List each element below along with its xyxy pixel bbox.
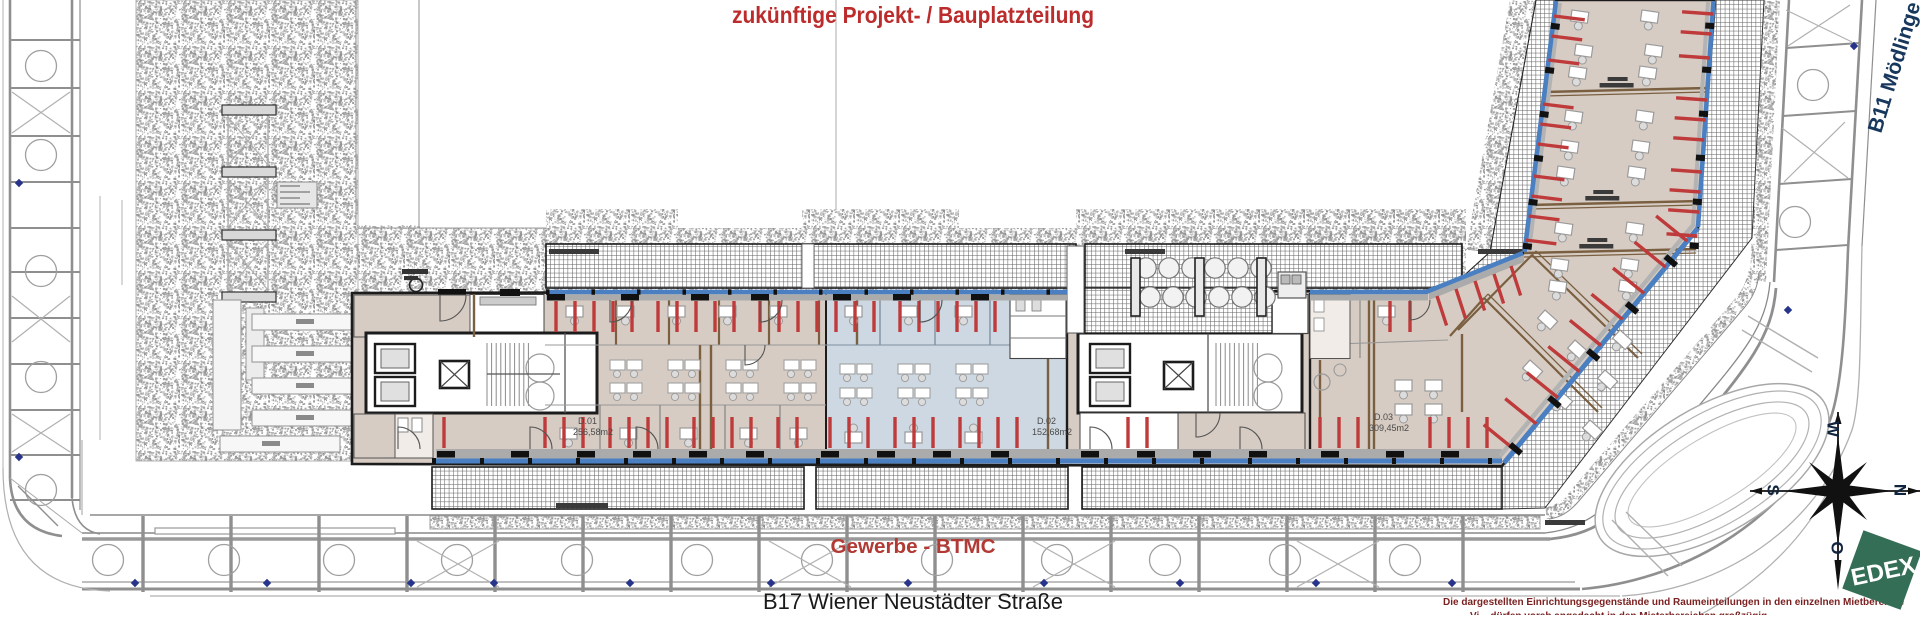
svg-text:D.03: D.03 (1374, 412, 1393, 422)
svg-text:B17 Wiener Neustädter Straße: B17 Wiener Neustädter Straße (763, 589, 1063, 614)
svg-text:Die dargestellten Einrichtungs: Die dargestellten Einrichtungsgegenständ… (1443, 597, 1905, 608)
svg-text:256,58m2: 256,58m2 (573, 427, 613, 437)
svg-text:N: N (1891, 484, 1910, 496)
svg-text:O: O (1828, 541, 1847, 554)
svg-text:W: W (1824, 421, 1843, 438)
svg-text:309,45m2: 309,45m2 (1369, 423, 1409, 433)
svg-text:152,68m2: 152,68m2 (1032, 427, 1072, 437)
svg-text:zukünftige Projekt- / Bauplatz: zukünftige Projekt- / Bauplatzteilung (732, 2, 1094, 28)
svg-text:Vi... dürfen vorab angedacht i: Vi... dürfen vorab angedacht in den Miet… (1470, 611, 1767, 615)
svg-text:S: S (1764, 484, 1783, 495)
svg-text:D.01: D.01 (578, 416, 597, 426)
svg-text:D.02: D.02 (1037, 416, 1056, 426)
svg-text:Gewerbe - BTMC: Gewerbe - BTMC (831, 536, 996, 558)
